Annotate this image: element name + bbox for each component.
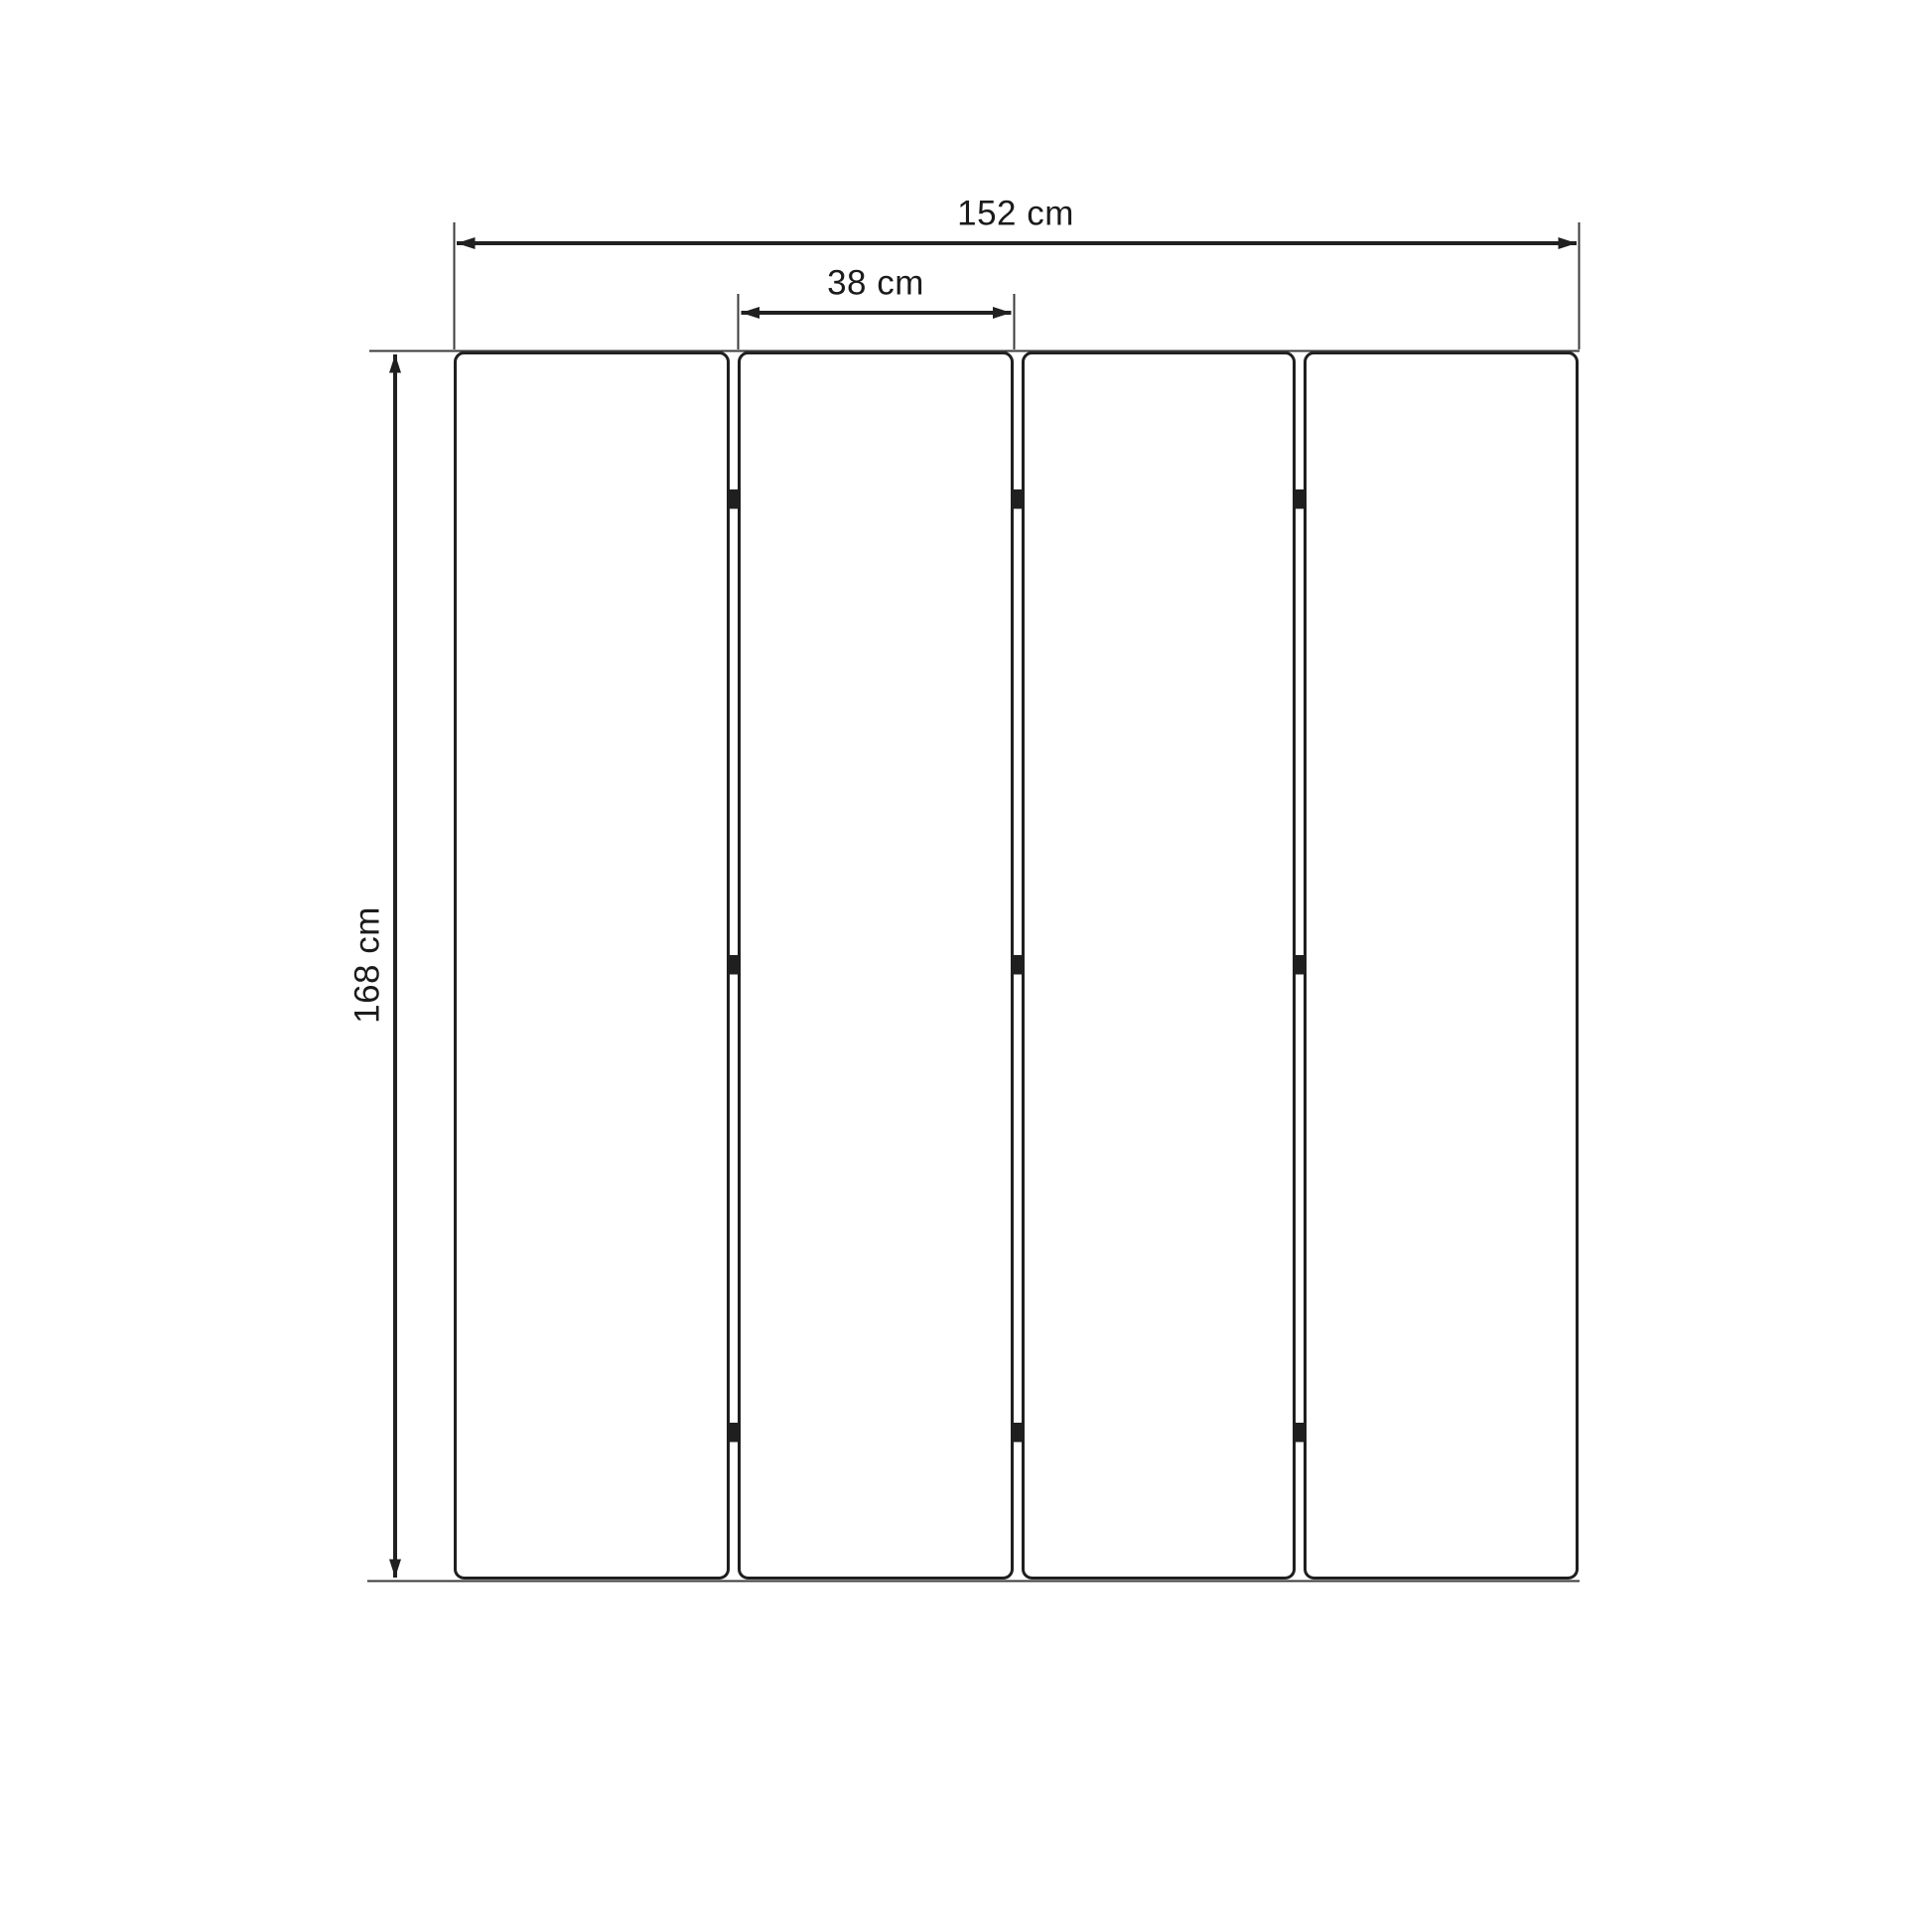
panel-2 [740, 353, 1013, 1579]
hinge-mark [1013, 1423, 1023, 1443]
folding-screen-diagram [0, 0, 1932, 1932]
hinge-mark [729, 1423, 739, 1443]
panel-3 [1024, 353, 1295, 1579]
total-width-dimension [455, 222, 1580, 349]
total-width-label: 152 cm [957, 197, 1074, 231]
hinge-mark [729, 955, 739, 975]
dimension-drawing-canvas: 152 cm 38 cm 168 cm [0, 0, 1932, 1932]
hinge-mark [1013, 955, 1023, 975]
hinge-mark [1295, 489, 1305, 509]
hinge-mark [1295, 955, 1305, 975]
panel-4 [1306, 353, 1578, 1579]
panel-width-label: 38 cm [827, 266, 924, 301]
panel-1 [456, 353, 729, 1579]
hinge-mark [1295, 1423, 1305, 1443]
hinge-mark [1013, 489, 1023, 509]
hinge-mark [729, 489, 739, 509]
height-label: 168 cm [350, 906, 385, 1024]
